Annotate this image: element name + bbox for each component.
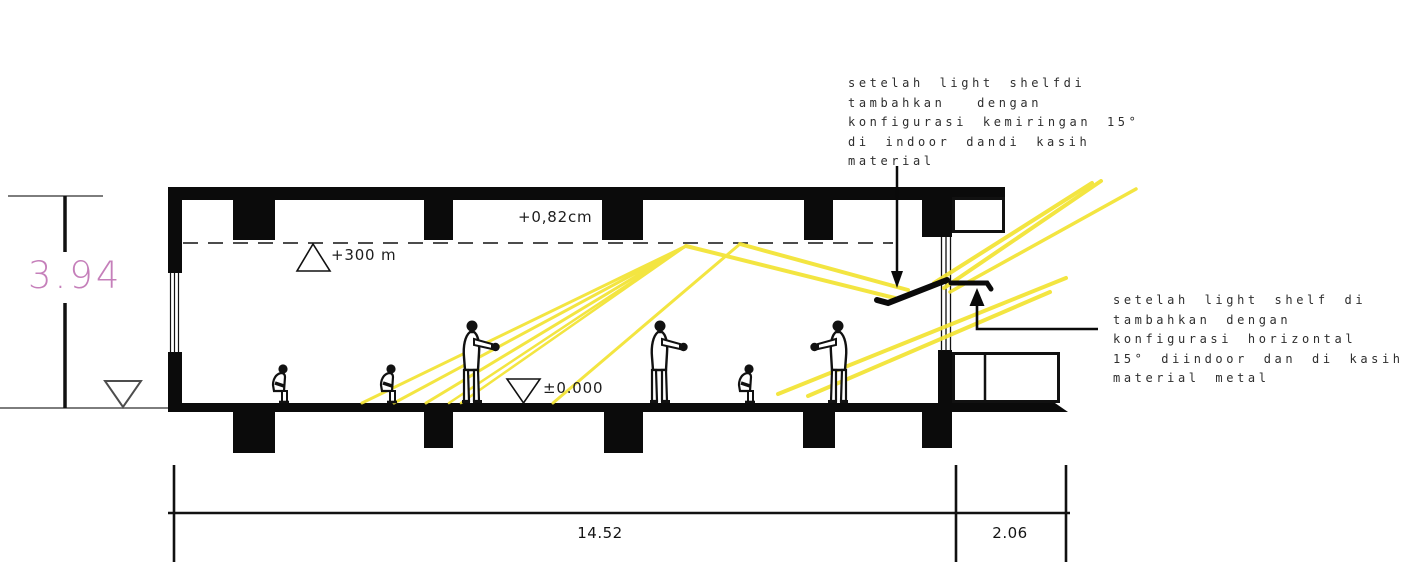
left-window-mullions [171, 273, 179, 352]
reflected-ray-to-ceiling [686, 246, 895, 298]
foundation-column [604, 411, 643, 453]
floor-level-label: ±0.000 [543, 379, 603, 397]
ceiling-beam [233, 200, 275, 240]
annotation-line: 15° diindoor dan di kasih [1113, 350, 1404, 370]
annotation-line: di indoor dandi kasih [848, 133, 1139, 153]
section-drawing-canvas [0, 0, 1427, 575]
right-wall-lower [938, 350, 952, 403]
section-height-value: 3.94 [28, 254, 122, 297]
ceiling-height-label: +300 m [331, 246, 396, 264]
sitting-person [273, 364, 289, 402]
standing-person [810, 321, 848, 402]
annotation-line: konfigurasi kemiringan 15° [848, 113, 1139, 133]
standing-person [650, 321, 688, 402]
annex-span-value: 2.06 [975, 524, 1045, 542]
ceiling-beam [804, 200, 833, 240]
annotation-line: setelah light shelf di [1113, 291, 1404, 311]
floor-level-triangle-icon [507, 379, 540, 403]
foundation-column [803, 411, 835, 448]
roof-slab [168, 187, 1005, 200]
parapet-box [954, 199, 1004, 232]
datum-triangle-icon [105, 381, 141, 407]
annotation-line: material metal [1113, 369, 1404, 389]
annotation-line: setelah light shelfdi [848, 74, 1139, 94]
floor-slab [168, 403, 1068, 412]
right-column-top [922, 200, 952, 237]
left-wall-upper [168, 187, 182, 273]
building-shell [168, 187, 1068, 453]
width-dimensions [168, 465, 1070, 562]
ceiling-offset-label: +0,82cm [518, 208, 592, 226]
top-annotation: setelah light shelfdi tambahkan dengan k… [848, 74, 1139, 172]
sitting-person [739, 364, 755, 402]
section-drawing: setelah light shelfdi tambahkan dengan k… [0, 0, 1427, 575]
annotation-line: tambahkan dengan [848, 94, 1139, 114]
foundation-column [424, 411, 453, 448]
right-annotation: setelah light shelf di tambahkan dengan … [1113, 291, 1404, 389]
height-dimension [0, 196, 172, 408]
ceiling-beam [602, 200, 643, 240]
annex-counter-box [954, 354, 1059, 402]
foundation-column [922, 411, 952, 448]
annotation-line: tambahkan dengan [1113, 311, 1404, 331]
ceiling-level-triangle-icon [297, 244, 330, 271]
up-arrow-icon [970, 288, 985, 306]
annotation-line: konfigurasi horizontal [1113, 330, 1404, 350]
annotation-line: material [848, 152, 1139, 172]
left-wall-lower [168, 352, 182, 404]
ceiling-beam [424, 200, 453, 240]
sitting-person [381, 364, 397, 402]
main-span-value: 14.52 [560, 524, 640, 542]
foundation-column [233, 411, 275, 453]
